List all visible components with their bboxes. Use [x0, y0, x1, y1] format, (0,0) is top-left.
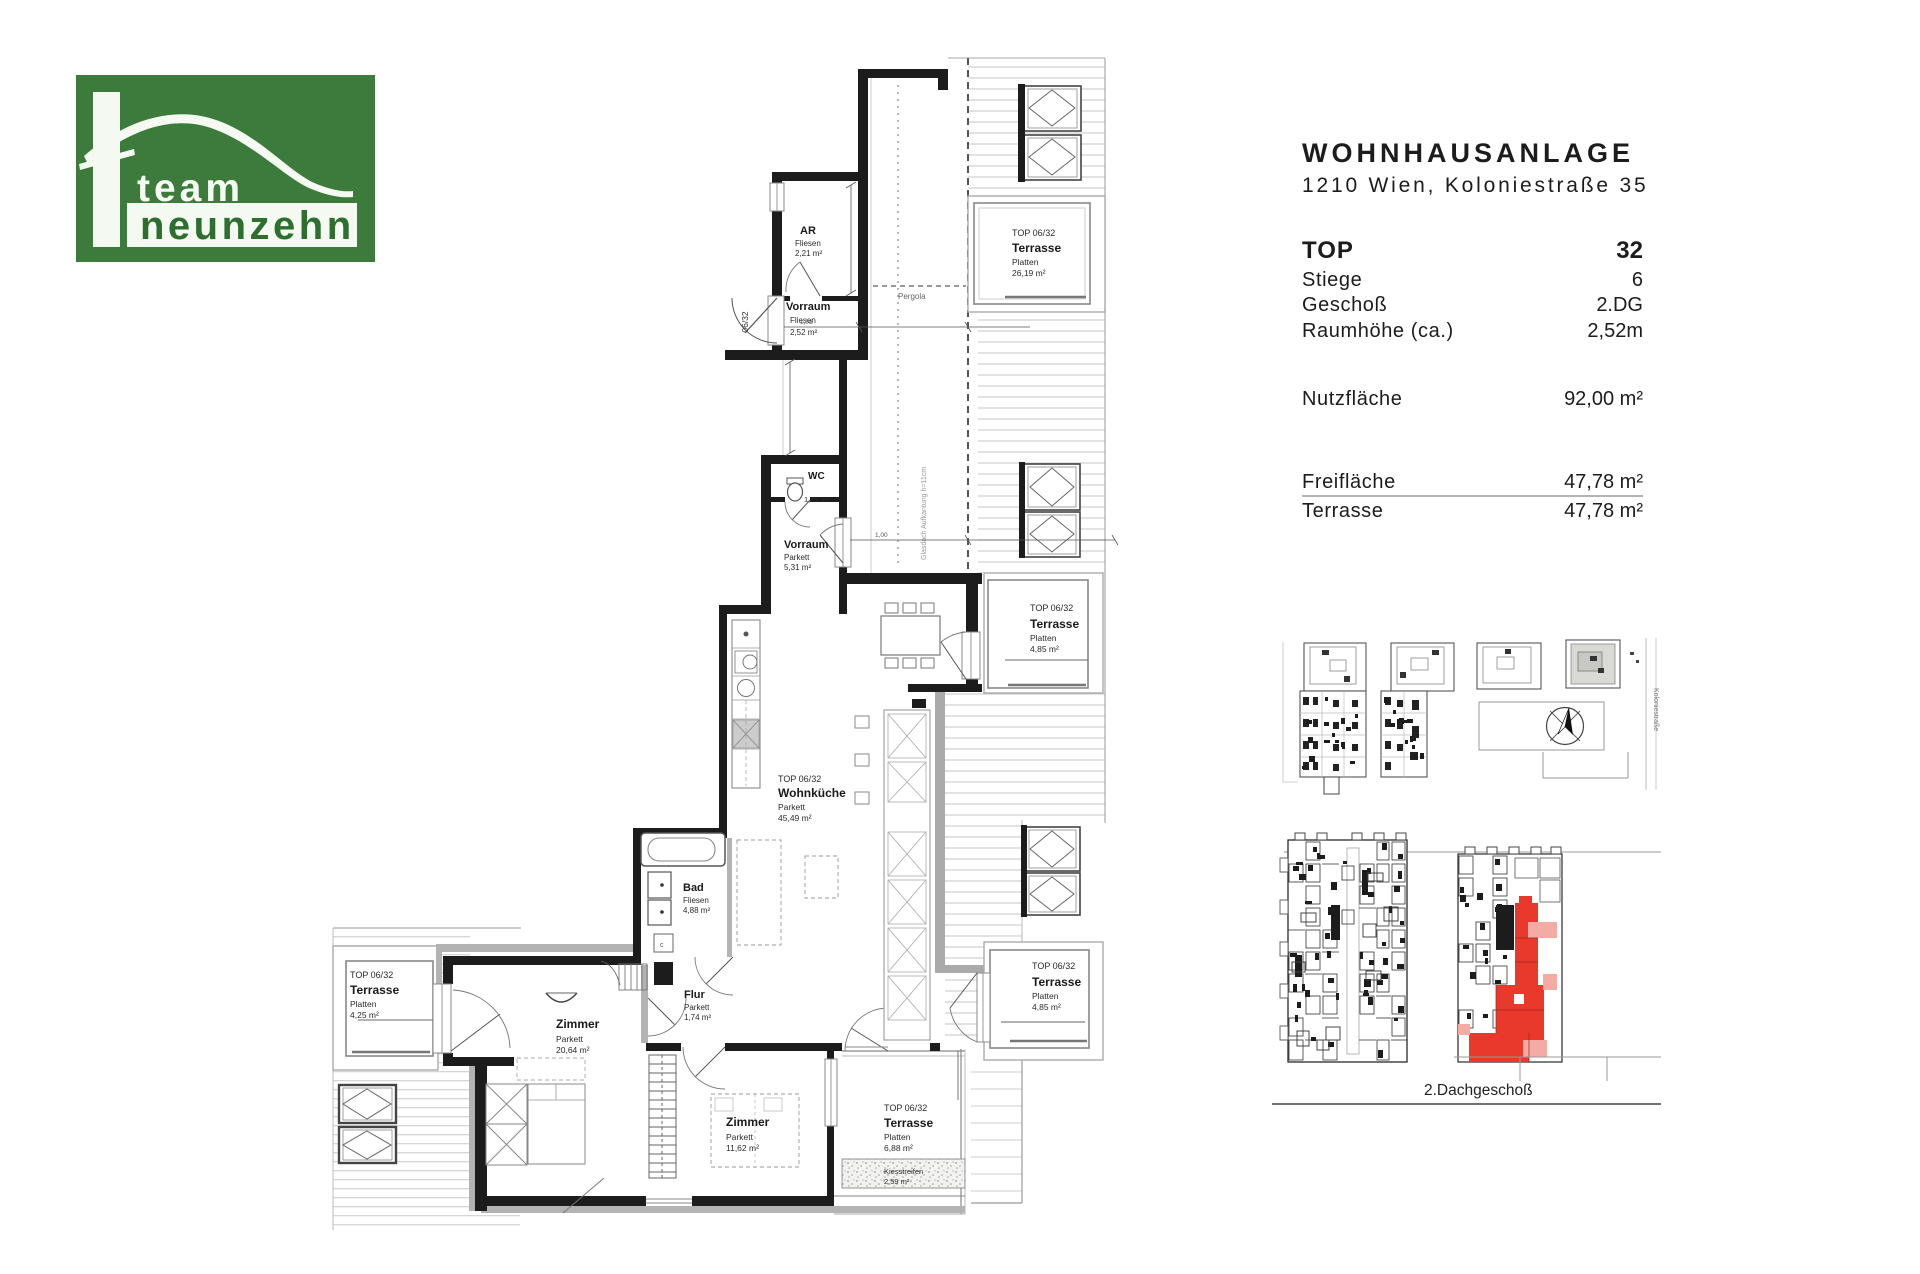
svg-text:Terrasse: Terrasse — [1302, 500, 1384, 522]
svg-text:32: 32 — [1616, 237, 1643, 264]
svg-text:Zimmer: Zimmer — [726, 1115, 770, 1129]
svg-text:Platten: Platten — [350, 999, 377, 1009]
svg-text:TOP 06/32: TOP 06/32 — [1012, 228, 1055, 238]
svg-text:2,52 m²: 2,52 m² — [790, 328, 817, 337]
svg-text:4,85 m²: 4,85 m² — [1032, 1002, 1061, 1012]
svg-text:1,19 m²: 1,19 m² — [804, 495, 830, 504]
svg-text:Vorraum: Vorraum — [784, 539, 829, 551]
svg-text:Terrasse: Terrasse — [1032, 975, 1081, 989]
svg-text:TOP 06/32: TOP 06/32 — [350, 970, 393, 980]
svg-text:Fliesen: Fliesen — [683, 896, 709, 905]
svg-text:WC: WC — [808, 471, 825, 482]
svg-text:Terrasse: Terrasse — [1012, 241, 1061, 255]
svg-text:47,78 m²: 47,78 m² — [1564, 471, 1643, 493]
svg-text:Terrasse: Terrasse — [1030, 617, 1079, 631]
svg-text:TOP: TOP — [1302, 237, 1354, 264]
svg-text:2,21 m²: 2,21 m² — [795, 249, 822, 258]
svg-text:Stiege: Stiege — [1302, 269, 1362, 291]
svg-text:1,08: 1,08 — [800, 319, 813, 326]
svg-text:Parkett: Parkett — [684, 1003, 710, 1012]
svg-text:c: c — [660, 942, 664, 949]
svg-text:47,78 m²: 47,78 m² — [1564, 500, 1643, 522]
svg-text:1210 Wien, Koloniestraße 35: 1210 Wien, Koloniestraße 35 — [1302, 174, 1648, 197]
svg-text:45,49 m²: 45,49 m² — [778, 813, 812, 823]
svg-text:Platten: Platten — [1030, 633, 1057, 643]
svg-text:Raumhöhe (ca.): Raumhöhe (ca.) — [1302, 320, 1454, 342]
svg-text:Freifläche: Freifläche — [1302, 471, 1396, 493]
svg-text:Pergola: Pergola — [898, 292, 926, 301]
svg-text:Zimmer: Zimmer — [556, 1017, 600, 1031]
svg-text:1,00: 1,00 — [875, 532, 888, 539]
svg-text:2.Dachgeschoß: 2.Dachgeschoß — [1424, 1082, 1533, 1099]
svg-text:Parkett: Parkett — [778, 802, 806, 812]
svg-text:06/32: 06/32 — [740, 311, 750, 333]
svg-text:4,25 m²: 4,25 m² — [350, 1010, 379, 1020]
svg-text:AR: AR — [800, 225, 816, 237]
svg-text:6: 6 — [1632, 269, 1643, 291]
svg-text:Parkett: Parkett — [784, 553, 810, 562]
svg-text:Terrasse: Terrasse — [350, 983, 399, 997]
svg-text:1,74 m²: 1,74 m² — [684, 1013, 711, 1022]
svg-text:Kiesstreifen: Kiesstreifen — [884, 1167, 923, 1176]
svg-text:5,31 m²: 5,31 m² — [784, 563, 811, 572]
svg-text:6,88 m²: 6,88 m² — [884, 1143, 913, 1153]
svg-text:92,00 m²: 92,00 m² — [1564, 388, 1643, 410]
svg-text:20,64 m²: 20,64 m² — [556, 1045, 590, 1055]
svg-text:Bad: Bad — [683, 882, 704, 894]
svg-text:Geschoß: Geschoß — [1302, 294, 1387, 316]
svg-text:Terrasse: Terrasse — [884, 1116, 933, 1130]
svg-text:Flur: Flur — [684, 989, 705, 1001]
svg-text:TOP 06/32: TOP 06/32 — [1030, 603, 1073, 613]
svg-text:TOP 06/32: TOP 06/32 — [1032, 961, 1075, 971]
svg-text:Koloniestraße: Koloniestraße — [1652, 688, 1659, 731]
svg-text:11,62 m²: 11,62 m² — [726, 1143, 759, 1153]
svg-text:26,19 m²: 26,19 m² — [1012, 268, 1046, 278]
svg-text:Platten: Platten — [884, 1132, 911, 1142]
svg-text:Nutzfläche: Nutzfläche — [1302, 388, 1403, 410]
svg-text:4,88 m²: 4,88 m² — [683, 906, 710, 915]
svg-text:4,85 m²: 4,85 m² — [1030, 644, 1059, 654]
svg-text:2,52m: 2,52m — [1587, 320, 1643, 342]
svg-text:TOP 06/32: TOP 06/32 — [884, 1103, 927, 1113]
svg-text:Glasdach Aufkantung h=11cm: Glasdach Aufkantung h=11cm — [921, 467, 928, 560]
svg-text:WOHNHAUSANLAGE: WOHNHAUSANLAGE — [1302, 138, 1634, 168]
svg-text:Platten: Platten — [1012, 257, 1039, 267]
svg-text:Vorraum: Vorraum — [786, 301, 831, 313]
svg-text:2.DG: 2.DG — [1596, 294, 1643, 316]
svg-text:2,59 m²: 2,59 m² — [884, 1177, 910, 1186]
svg-text:Parkett: Parkett — [556, 1034, 584, 1044]
svg-text:neunzehn: neunzehn — [140, 204, 355, 248]
svg-text:Parkett: Parkett — [726, 1132, 754, 1142]
svg-text:Platten: Platten — [1032, 991, 1059, 1001]
svg-text:TOP 06/32: TOP 06/32 — [778, 774, 821, 784]
svg-text:Fliesen: Fliesen — [795, 239, 821, 248]
svg-text:Wohnküche: Wohnküche — [778, 786, 846, 800]
